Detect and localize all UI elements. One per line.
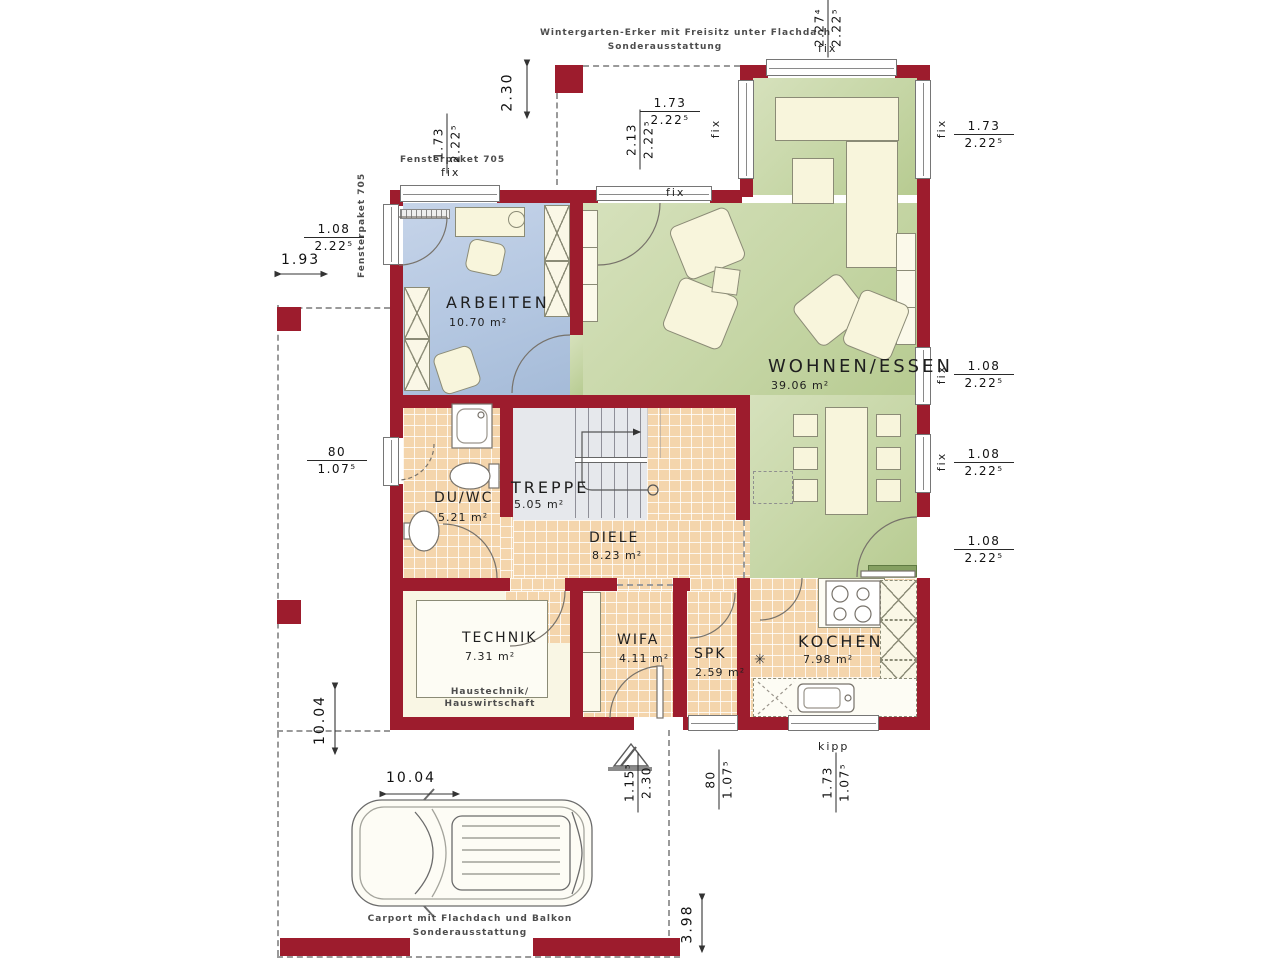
note-wintergarten: Wintergarten-Erker mit Freisitz unter Fl… (540, 26, 790, 54)
room-area-diele: 8.23 m² (592, 549, 642, 562)
fix-label-terrace: fix (666, 186, 685, 199)
room-label-spk: SPK (694, 646, 727, 662)
wall-technik-top-a (390, 578, 510, 591)
window-arbeiten-left (383, 204, 399, 265)
room-label-arbeiten: ARBEITEN (446, 293, 550, 312)
dim-spk-window: 80 1.07⁵ (704, 750, 735, 810)
wall-right-a (917, 195, 930, 348)
wall-left-c (390, 484, 403, 730)
cabinet-arbeiten-1 (544, 205, 570, 261)
wall-right-d (917, 577, 930, 730)
kitchen-counter (753, 678, 917, 717)
wall-technik-top-b (565, 578, 617, 591)
kitchen-tall-cabinet-1 (880, 580, 917, 620)
stairs-upper-flight (575, 406, 647, 458)
window-terrace-fix (596, 186, 712, 201)
wall-terrace-post (555, 65, 583, 93)
dim-arbeiten-top: 1.73 2.22⁵ (432, 114, 463, 174)
door-terrace-right (917, 517, 930, 578)
floor-doorgap-spk (690, 578, 737, 591)
room-label-treppe: TREPPE (511, 478, 589, 497)
room-area-spk: 2.59 m² (695, 666, 745, 679)
carport-bar-left (280, 938, 410, 956)
room-label-diele: DIELE (589, 530, 639, 546)
dim-rear-offset: 3.98 (680, 904, 696, 943)
wall-spk-right (737, 591, 750, 717)
car (352, 789, 592, 917)
radiator-arbeiten (400, 209, 450, 219)
note-technik-line1: Haustechnik/ (430, 686, 550, 698)
dining-chair-5 (876, 447, 901, 470)
window-right-2-fix (915, 434, 931, 493)
room-label-kochen: KOCHEN (798, 632, 884, 651)
room-area-duwc: 5.21 m² (438, 511, 488, 524)
fix-label-erker-left: fix (709, 119, 722, 138)
wall-top-east (710, 190, 742, 203)
dining-chair-3 (793, 479, 818, 502)
note-carport: Carport mit Flachdach und Balkon Sondera… (350, 912, 590, 940)
wardrobe-arbeiten-2 (404, 339, 430, 391)
floor-plan: ARBEITEN 10.70 m² WOHNEN/ESSEN 39.06 m² … (0, 0, 1280, 960)
dim-carport-length: 10.04 (386, 770, 436, 786)
carport-dash-left (277, 305, 279, 956)
dim-arbeiten-left: 1.08 2.22⁵ (304, 222, 364, 253)
room-label-technik: TECHNIK (462, 630, 537, 646)
wall-spk-top-a (673, 578, 690, 591)
room-area-arbeiten: 10.70 m² (449, 316, 507, 329)
technik-worktop (416, 600, 548, 698)
dim-entry-door: 1.15⁵ 2.30 (623, 753, 654, 813)
carport-bar-right (533, 938, 680, 956)
dining-table (825, 407, 868, 515)
spk-symbol: ✳ (754, 652, 766, 668)
carport-post-top (277, 307, 301, 331)
wall-wifa-right (673, 591, 687, 717)
wall-bottom-c (737, 717, 790, 730)
wifa-cabinet (582, 592, 601, 712)
dim-right-door: 1.08 2.22⁵ (954, 534, 1014, 565)
wall-top-mid (497, 190, 598, 203)
note-technik-line2: Hauswirtschaft (430, 698, 550, 710)
stove-counter (818, 578, 885, 628)
wall-right-b (917, 403, 930, 435)
sofa-horizontal (775, 97, 899, 141)
window-kochen-kipp (788, 715, 879, 731)
fix-label-erker-right: fix (935, 119, 948, 138)
terrace-dash-top (583, 65, 740, 67)
diele-passage-dash (743, 520, 745, 578)
wall-arbeiten-right (570, 203, 583, 335)
stairs-railing (575, 457, 647, 463)
room-area-wohnen: 39.06 m² (771, 379, 829, 392)
dim-duwc-window: 80 1.07⁵ (307, 445, 367, 476)
floor-doorgap-technik (510, 578, 565, 591)
window-arbeiten-top-fix (400, 185, 500, 202)
window-spk (688, 715, 738, 731)
floor-doorgap-arbeiten (570, 335, 583, 395)
dining-chair-1 (793, 414, 818, 437)
dim-right-window1: 1.08 2.22⁵ (954, 359, 1014, 390)
wifa-opening-dash (617, 584, 673, 586)
window-erker-right-fix (915, 80, 931, 179)
room-area-treppe: 5.05 m² (514, 498, 564, 511)
dining-chair-6 (876, 479, 901, 502)
note-wintergarten-line2: Sonderausstattung (540, 40, 790, 54)
note-carport-line1: Carport mit Flachdach und Balkon (350, 912, 590, 926)
wall-left-b (390, 264, 403, 438)
fix-label-right-2: fix (935, 452, 948, 471)
window-erker-top-fix (766, 59, 897, 76)
dim-terrace-height: 2.13 2.22⁵ (625, 110, 656, 170)
carport-dash-house (277, 730, 390, 732)
wall-bottom-a (390, 717, 634, 730)
kitchen-tall-cabinet-2 (880, 620, 917, 660)
wall-technik-right (570, 591, 583, 717)
wall-spk-top-b (737, 578, 750, 591)
room-area-wifa: 4.11 m² (619, 652, 669, 665)
kipp-label: kipp (818, 740, 849, 753)
note-wintergarten-line1: Wintergarten-Erker mit Freisitz unter Fl… (540, 26, 790, 40)
note-technik: Haustechnik/ Hauswirtschaft (430, 686, 550, 710)
stairs-cut-flight (647, 406, 673, 458)
dim-erker-right: 1.73 2.22⁵ (954, 119, 1014, 150)
dim-right-window2: 1.08 2.22⁵ (954, 447, 1014, 478)
dim-house-depth: 10.04 (312, 695, 328, 745)
window-erker-left-fix (738, 80, 754, 179)
wall-diele-wohnen (736, 395, 750, 520)
floor-doorgap-duwc (500, 515, 513, 578)
dining-chair-4 (876, 414, 901, 437)
fix-label-right-1: fix (935, 365, 948, 384)
wardrobe-arbeiten-1 (404, 287, 430, 339)
wall-duwc-right (500, 403, 513, 517)
door-entrance (634, 717, 683, 730)
chimney-option-box (753, 471, 793, 504)
sofa-vertical (846, 141, 898, 268)
wall-right-c (917, 492, 930, 518)
dining-chair-2 (793, 447, 818, 470)
terrace-dash-left (556, 93, 558, 185)
wall-erker-right-b (917, 177, 930, 197)
carport-dash-bottom (277, 956, 680, 958)
carport-post-mid (277, 600, 301, 624)
dim-offset-left: 1.93 (281, 252, 320, 268)
side-table (711, 266, 740, 295)
room-label-wohnen: WOHNEN/ESSEN (768, 356, 953, 377)
wall-mid-horizontal (390, 395, 736, 408)
carport-dash-right (668, 730, 670, 956)
room-area-kochen: 7.98 m² (803, 653, 853, 666)
room-label-wifa: WIFA (617, 632, 659, 648)
dim-terrace-depth: 2.30 (500, 72, 516, 111)
desk-lamp (508, 211, 525, 228)
dim-kitchen-window: 1.73 1.07⁵ (821, 753, 852, 813)
room-area-technik: 7.31 m² (465, 650, 515, 663)
note-carport-line2: Sonderausstattung (350, 926, 590, 940)
dim-erker-top-width: 2.27⁴ 2.22⁵ (813, 0, 844, 58)
room-label-duwc: DU/WC (434, 490, 493, 506)
coffee-table (792, 158, 834, 204)
window-duwc (383, 437, 399, 486)
kitchen-sideboard (868, 565, 917, 577)
